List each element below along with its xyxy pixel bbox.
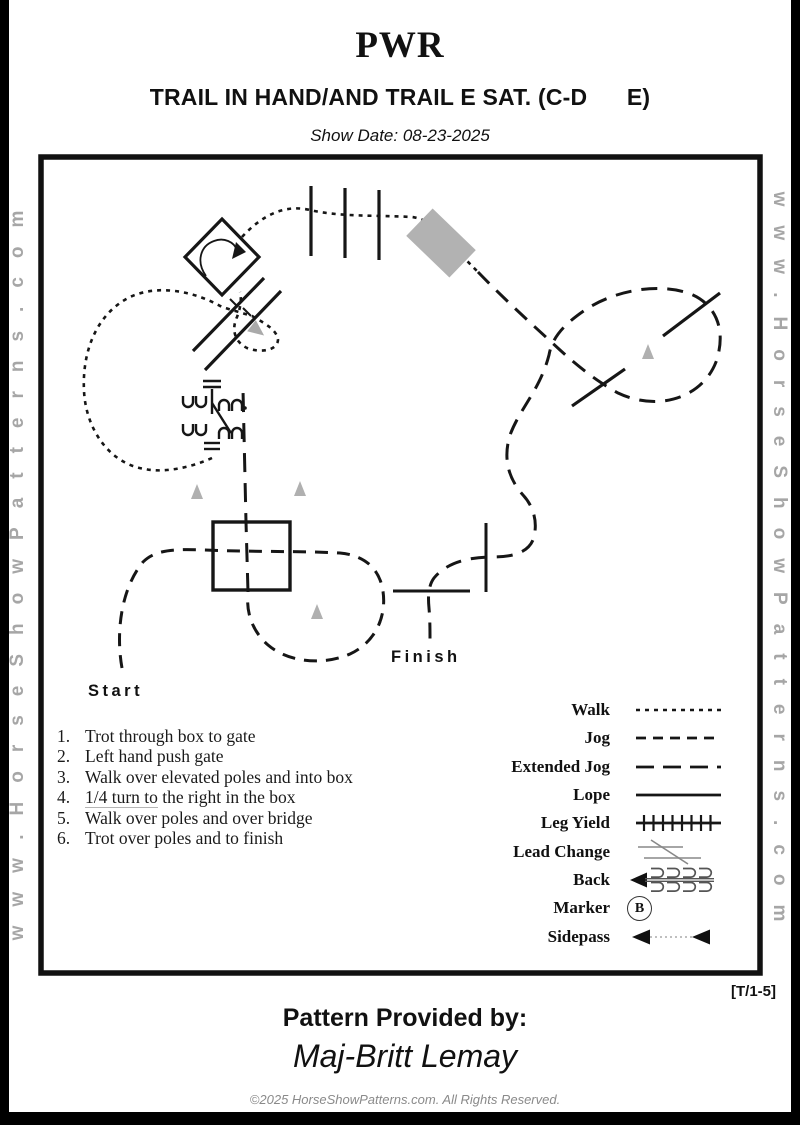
legend-row-jog: Jog — [478, 724, 760, 752]
walk-path-loop — [84, 290, 278, 470]
instruction-item: 6. Trot over poles and to finish — [57, 828, 397, 848]
instruction-text: 1/4 turn to the right in the box — [85, 787, 295, 807]
finish-label: Finish — [391, 648, 461, 667]
legend-row-lope: Lope — [478, 781, 760, 809]
legend-row-extended-jog: Extended Jog — [478, 753, 760, 781]
turn-box — [185, 219, 259, 295]
legend-label: Walk — [478, 700, 610, 720]
jog-line-symbol — [626, 725, 746, 751]
legend-label: Leg Yield — [478, 813, 610, 833]
instruction-number: 6. — [57, 828, 85, 848]
instruction-number: 3. — [57, 767, 85, 787]
legend-label: Marker — [478, 898, 610, 918]
jog-path-start — [120, 550, 384, 668]
legend-row-marker: Marker B — [478, 894, 760, 922]
legend-row-back: Back — [478, 866, 760, 894]
legend-label: Extended Jog — [478, 757, 610, 777]
circle-pole-2 — [572, 369, 625, 406]
start-label: Start — [88, 682, 143, 701]
lope-line-symbol — [626, 782, 746, 808]
bridge — [406, 208, 476, 277]
instruction-number: 5. — [57, 808, 85, 828]
extended-jog-vertical — [243, 390, 248, 592]
instruction-number: 1. — [57, 726, 85, 746]
cone-2 — [294, 481, 306, 496]
leg-yield-symbol — [626, 810, 746, 836]
provider-name: Maj-Britt Lemay — [0, 1038, 800, 1075]
extended-jog-line-symbol — [626, 754, 746, 780]
instruction-number: 2. — [57, 746, 85, 766]
pole-tick-1 — [230, 299, 238, 307]
instruction-text: Trot through box to gate — [85, 726, 255, 746]
back-symbol — [626, 867, 746, 893]
marker-b-symbol: B — [627, 896, 652, 921]
instruction-text-underlined: 1/4 turn to — [85, 787, 158, 808]
turn-arrow-curve — [200, 240, 237, 276]
course-diagram — [0, 0, 800, 1125]
copyright-line: ©2025 HorseShowPatterns.com. All Rights … — [0, 1092, 800, 1107]
legend-row-leg-yield: Leg Yield — [478, 809, 760, 837]
provided-by-label: Pattern Provided by: — [0, 1004, 800, 1033]
sidepass-symbol — [626, 924, 746, 950]
cone-4 — [642, 344, 654, 359]
legend: Walk Jog Extended Jog Lope Leg Yield — [478, 696, 760, 951]
instruction-item: 1. Trot through box to gate — [57, 726, 397, 746]
legend-row-lead-change: Lead Change — [478, 837, 760, 865]
instruction-item: 4. 1/4 turn to the right in the box — [57, 787, 397, 807]
instruction-text-rest: the right in the box — [158, 787, 296, 807]
legend-label: Lead Change — [478, 842, 610, 862]
legend-row-sidepass: Sidepass — [478, 922, 760, 950]
instruction-item: 5. Walk over poles and over bridge — [57, 808, 397, 828]
legend-label: Lope — [478, 785, 610, 805]
cone-3 — [311, 604, 323, 619]
instruction-number: 4. — [57, 787, 85, 807]
gate-symbol — [183, 381, 247, 449]
walk-line-symbol — [626, 697, 746, 723]
instruction-item: 3. Walk over elevated poles and into box — [57, 767, 397, 787]
instruction-text: Left hand push gate — [85, 746, 224, 766]
legend-label: Back — [478, 870, 610, 890]
legend-label: Jog — [478, 728, 610, 748]
cones — [191, 344, 654, 619]
cone-1 — [191, 484, 203, 499]
lead-change-symbol — [626, 839, 746, 865]
legend-row-walk: Walk — [478, 696, 760, 724]
legend-label: Sidepass — [478, 927, 610, 947]
instruction-list: 1. Trot through box to gate 2. Left hand… — [57, 726, 397, 848]
elevated-pole-2 — [205, 291, 281, 370]
square-box — [213, 522, 290, 590]
instruction-text: Trot over poles and to finish — [85, 828, 283, 848]
instruction-text: Walk over elevated poles and into box — [85, 767, 353, 787]
instruction-item: 2. Left hand push gate — [57, 746, 397, 766]
pattern-code: [T/1-5] — [731, 983, 776, 1000]
circle-pole-1 — [663, 293, 720, 336]
instruction-text: Walk over poles and over bridge — [85, 808, 312, 828]
